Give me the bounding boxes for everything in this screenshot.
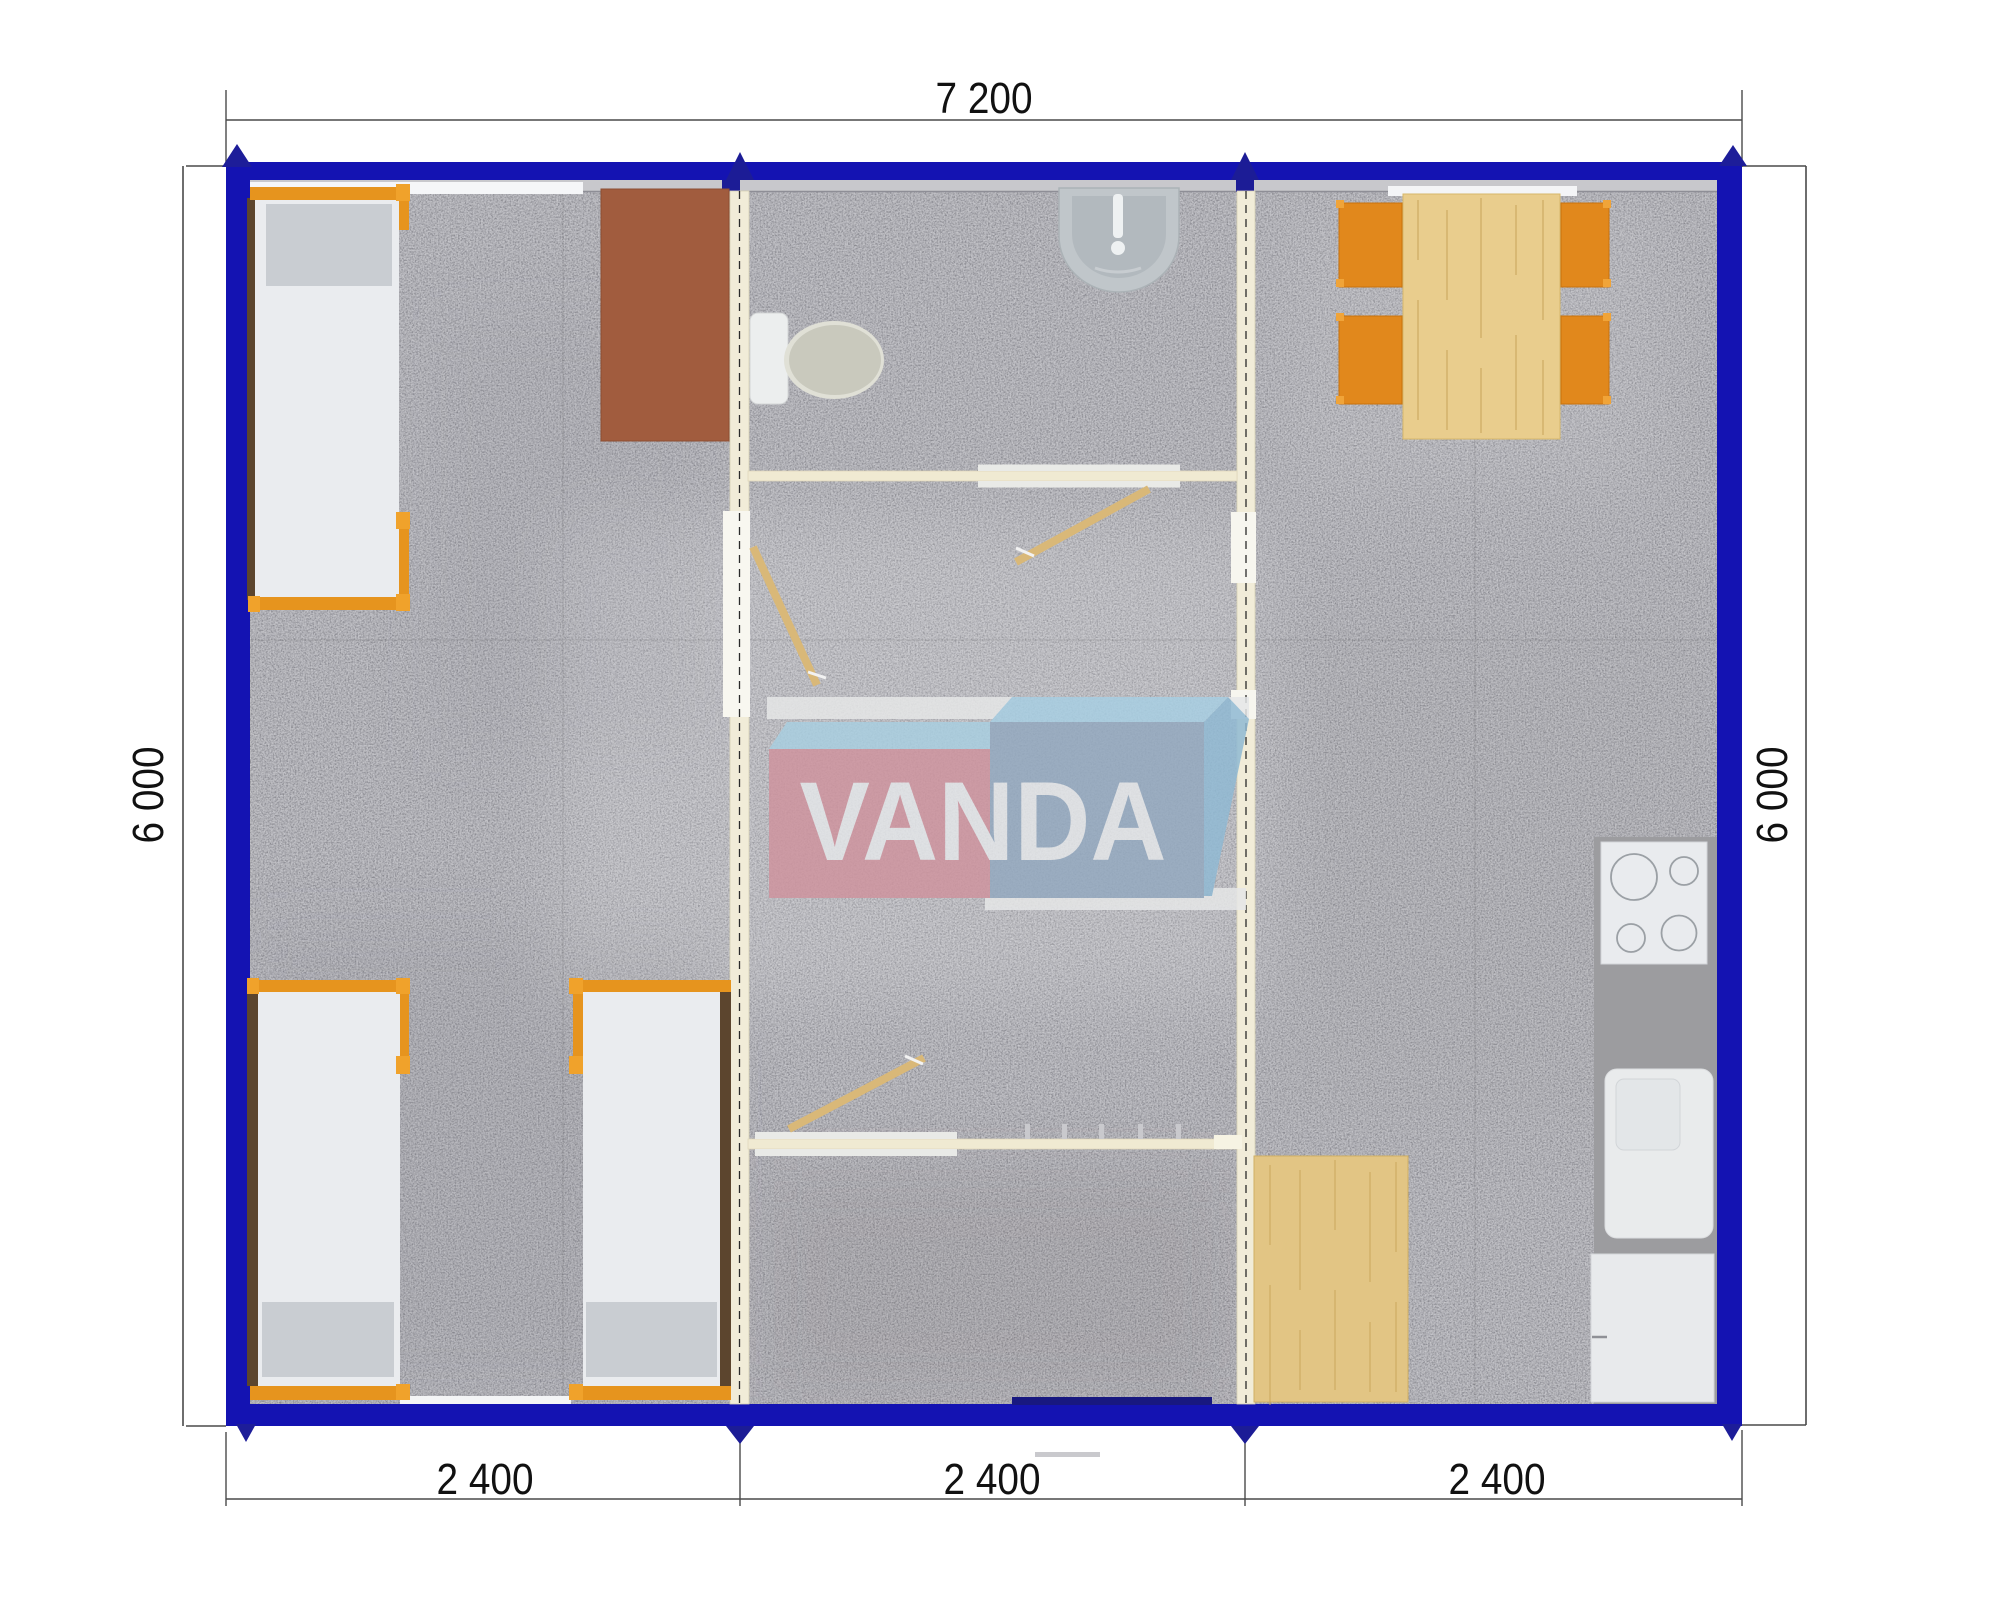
svg-text:6 000: 6 000 [124,747,173,844]
svg-text:6 000: 6 000 [1748,747,1797,844]
svg-text:VANDA: VANDA [800,759,1167,884]
svg-text:2 400: 2 400 [944,1455,1041,1504]
svg-text:7 200: 7 200 [936,74,1033,123]
svg-text:2 400: 2 400 [437,1455,534,1504]
svg-text:2 400: 2 400 [1449,1455,1546,1504]
